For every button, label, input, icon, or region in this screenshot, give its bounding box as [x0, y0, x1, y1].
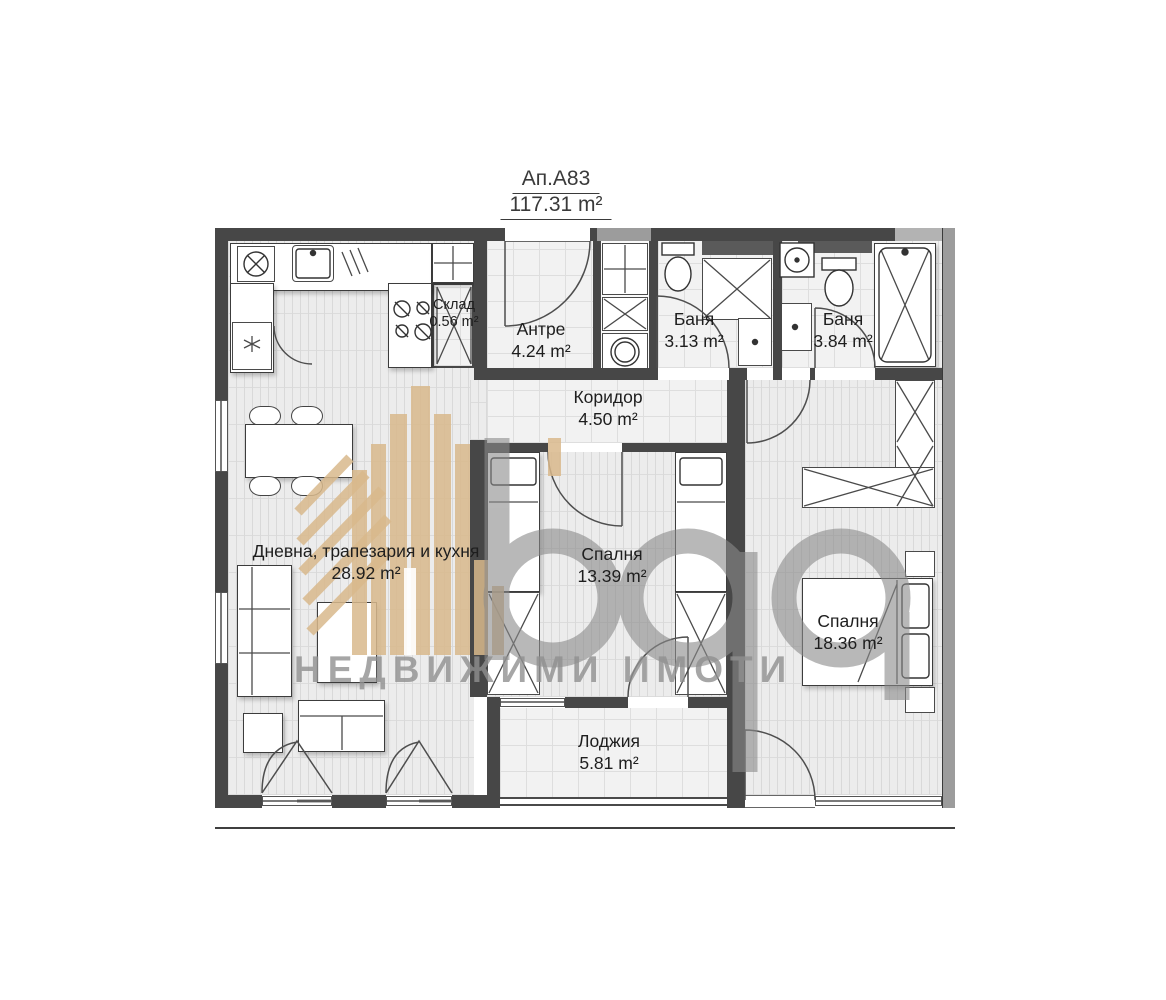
wall — [487, 368, 657, 380]
floor-living-opening — [470, 380, 487, 440]
room-area: 28.92 m² — [253, 562, 480, 584]
nightstand — [905, 551, 935, 577]
wall — [942, 228, 955, 808]
single-bed-right — [675, 452, 727, 592]
chair — [291, 476, 323, 496]
room-area: 13.39 m² — [577, 565, 646, 587]
window — [215, 400, 228, 472]
room-label-storage: Склад 0.56 m² — [429, 297, 478, 332]
wardrobe-wide — [802, 467, 935, 508]
wall — [727, 795, 745, 808]
room-name: Склад — [429, 297, 478, 314]
sofa-vertical — [237, 565, 292, 697]
room-label-entry: Антре 4.24 m² — [511, 318, 570, 363]
room-name: Дневна, трапезария и кухня — [253, 540, 480, 562]
room-area: 5.81 m² — [578, 752, 640, 774]
room-name: Баня — [813, 308, 872, 330]
wall — [487, 443, 548, 452]
kitchen-counter-stove — [388, 283, 432, 368]
tiled-band — [702, 241, 773, 255]
balcony-window — [262, 796, 332, 806]
floor-plan-page: Ап.А83 117.31 m² — [0, 0, 1166, 1000]
shelf-unit — [602, 243, 648, 295]
wall — [773, 241, 782, 380]
watermark-agency-text: НЕДВИЖИМИ ИМОТИ — [294, 649, 793, 691]
wall — [593, 241, 601, 380]
chair — [249, 406, 281, 426]
loggia-railing — [500, 797, 727, 806]
room-label-loggia: Лоджия 5.81 m² — [578, 730, 640, 775]
chair — [291, 406, 323, 426]
wall — [590, 228, 597, 241]
apartment-number: Ап.А83 — [513, 168, 600, 194]
wall — [332, 795, 386, 808]
room-name: Лоджия — [578, 730, 640, 752]
facade-line — [215, 827, 955, 829]
balcony-door-opening — [745, 795, 815, 808]
sofa-horizontal — [298, 700, 385, 752]
window — [500, 698, 565, 707]
kitchen-sink — [292, 245, 334, 282]
room-name: Баня — [664, 308, 723, 330]
room-area: 0.56 m² — [429, 314, 478, 331]
wall — [487, 697, 500, 795]
dining-table — [245, 424, 353, 478]
room-label-living: Дневна, трапезария и кухня 28.92 m² — [253, 540, 480, 585]
wall — [729, 368, 747, 380]
wall — [597, 228, 651, 241]
washing-machine — [602, 333, 648, 371]
room-name: Коридор — [573, 386, 642, 408]
window — [815, 796, 942, 806]
wall — [688, 697, 727, 708]
gas-hob — [237, 246, 275, 282]
bathtub — [874, 243, 936, 367]
kitchen-tall-cabinet — [432, 243, 474, 283]
wall — [727, 380, 745, 795]
wall — [810, 368, 815, 380]
room-label-corridor: Коридор 4.50 m² — [573, 386, 642, 431]
wall — [651, 228, 895, 241]
room-name: Антре — [511, 318, 570, 340]
wall — [565, 697, 628, 708]
room-name: Спалня — [577, 543, 646, 565]
room-label-bedroom-1: Спалня 13.39 m² — [577, 543, 646, 588]
bathroom-cabinet — [779, 303, 812, 351]
single-bed-left — [487, 452, 540, 592]
room-label-bathroom-1: Баня 3.13 m² — [664, 308, 723, 353]
wall — [895, 228, 942, 241]
tiled-band — [798, 241, 872, 253]
wall — [215, 228, 505, 241]
chair — [249, 476, 281, 496]
wall — [215, 241, 228, 808]
room-area: 18.36 m² — [813, 632, 882, 654]
room-area: 4.50 m² — [573, 408, 642, 430]
wall — [452, 795, 500, 808]
apartment-total-area: 117.31 m² — [501, 194, 612, 220]
room-label-bedroom-2: Спалня 18.36 m² — [813, 610, 882, 655]
nightstand — [905, 687, 935, 713]
room-area: 4.24 m² — [511, 340, 570, 362]
entry-door-opening — [505, 228, 590, 242]
balcony-window — [386, 796, 452, 806]
window — [215, 592, 228, 664]
wall — [649, 241, 658, 380]
room-label-bathroom-2: Баня 3.84 m² — [813, 308, 872, 353]
bathroom-sink-cabinet — [738, 318, 772, 366]
room-area: 3.84 m² — [813, 330, 872, 352]
closet-wardrobe — [602, 297, 648, 331]
side-table — [243, 713, 283, 753]
room-name: Спалня — [813, 610, 882, 632]
wall — [875, 368, 942, 380]
room-area: 3.13 m² — [664, 330, 723, 352]
fridge — [232, 322, 272, 370]
plan-title: Ап.А83 117.31 m² — [501, 168, 612, 220]
wall — [215, 795, 262, 808]
